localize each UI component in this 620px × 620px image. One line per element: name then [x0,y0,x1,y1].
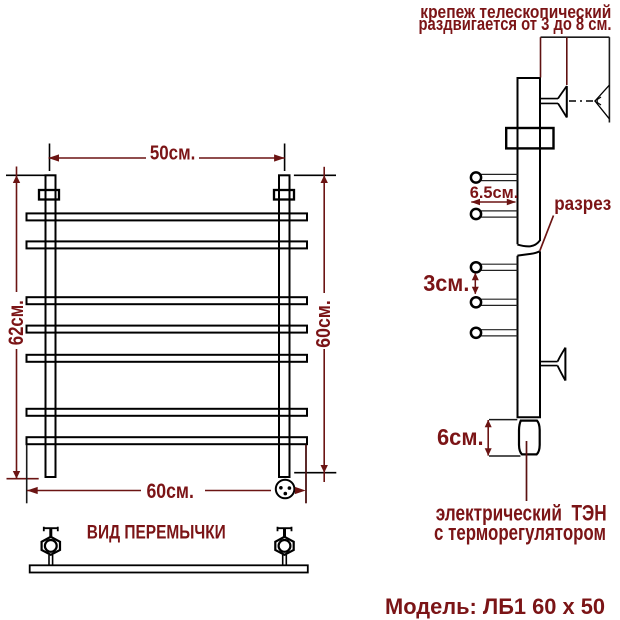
svg-text:3см.: 3см. [423,270,469,296]
svg-text:с терморегулятором: с терморегулятором [434,520,606,545]
svg-text:60см.: 60см. [312,300,335,348]
svg-text:50см.: 50см. [150,141,196,164]
svg-text:6.5см.: 6.5см. [470,183,519,202]
svg-text:разрез: разрез [554,193,611,215]
svg-text:ВИД ПЕРЕМЫЧКИ: ВИД ПЕРЕМЫЧКИ [87,522,226,544]
svg-text:6см.: 6см. [437,424,484,450]
svg-text:раздвигается от 3 до 8 см.: раздвигается от 3 до 8 см. [419,14,612,34]
svg-text:Модель: ЛБ1 60 х 50: Модель: ЛБ1 60 х 50 [385,594,605,619]
svg-text:60см.: 60см. [146,480,194,503]
svg-text:62см.: 62см. [5,300,28,345]
